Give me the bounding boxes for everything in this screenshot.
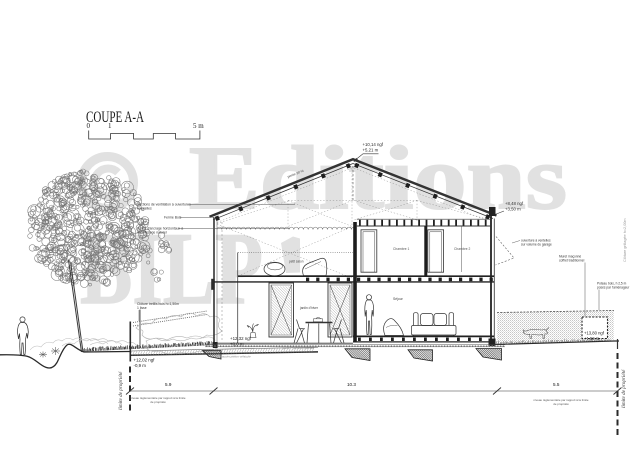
svg-text:0: 0 bbox=[87, 122, 91, 130]
svg-text:remplissage naturel: remplissage naturel bbox=[137, 231, 167, 235]
svg-text:de propriété: de propriété bbox=[150, 400, 166, 404]
svg-text:+5,21 m: +5,21 m bbox=[363, 147, 379, 152]
svg-text:5.9: 5.9 bbox=[165, 382, 172, 387]
svg-text:coffret traditionnel: coffret traditionnel bbox=[559, 259, 585, 263]
svg-text:Chambre 1: Chambre 1 bbox=[393, 247, 409, 251]
svg-text:Séjour: Séjour bbox=[393, 297, 404, 301]
svg-text:Clôture grillagée h=2,00m: Clôture grillagée h=2,00m bbox=[623, 218, 627, 262]
svg-text:10.3: 10.3 bbox=[347, 382, 356, 387]
svg-text:posés par l'aménageur: posés par l'aménageur bbox=[597, 286, 630, 290]
svg-text:+0,0 m: +0,0 m bbox=[230, 342, 244, 347]
svg-text:-0,9 m: -0,9 m bbox=[134, 363, 147, 368]
svg-text:COUPE A-A: COUPE A-A bbox=[86, 109, 145, 126]
svg-text:limite de propriété: limite de propriété bbox=[621, 369, 627, 408]
svg-text:accès piéton véhicule: accès piéton véhicule bbox=[222, 355, 251, 359]
svg-text:1 lisse: 1 lisse bbox=[137, 306, 147, 310]
svg-text:sur volume du garage: sur volume du garage bbox=[521, 243, 552, 247]
svg-text:petit salon: petit salon bbox=[289, 260, 304, 264]
svg-text:Chambre 2: Chambre 2 bbox=[454, 247, 470, 251]
svg-text:+8,48 ngf: +8,48 ngf bbox=[505, 201, 524, 206]
svg-text:+12,32 ngf: +12,32 ngf bbox=[230, 336, 252, 341]
svg-text:+1,52 m: +1,52 m bbox=[584, 336, 600, 341]
svg-text:+3,50 m: +3,50 m bbox=[505, 207, 521, 212]
svg-text:limite de propriété: limite de propriété bbox=[118, 371, 124, 410]
svg-text:jardin d'hiver: jardin d'hiver bbox=[299, 306, 319, 310]
svg-text:Ferme Bois: Ferme Bois bbox=[164, 216, 182, 220]
svg-text:+13,80 ngf: +13,80 ngf bbox=[584, 331, 605, 336]
svg-text:de propriété: de propriété bbox=[553, 402, 569, 406]
svg-text:5 m: 5 m bbox=[193, 122, 204, 130]
svg-text:1: 1 bbox=[108, 122, 112, 130]
svg-text:5.5: 5.5 bbox=[553, 382, 560, 387]
svg-text:+10,14 ngf: +10,14 ngf bbox=[363, 142, 384, 147]
svg-text:naturelles: naturelles bbox=[137, 207, 152, 211]
svg-text:jardin : pelouse plantée: jardin : pelouse plantée bbox=[282, 346, 314, 350]
svg-text:+12,02 ngf: +12,02 ngf bbox=[134, 357, 156, 362]
